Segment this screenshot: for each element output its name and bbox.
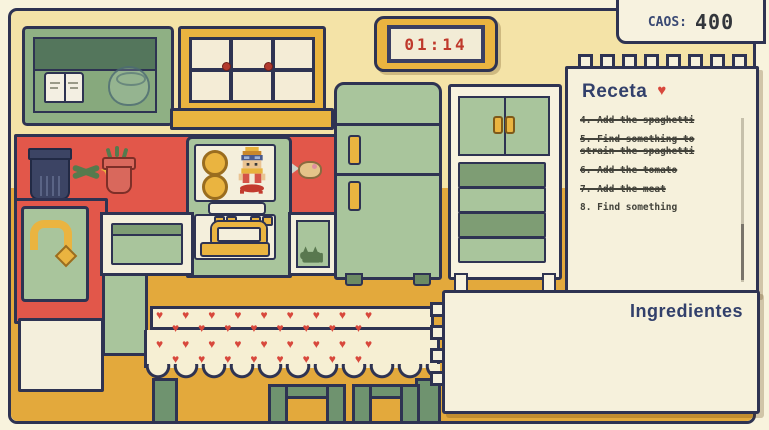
heart-pattern-icon: ♥ — [355, 322, 362, 334]
sprout — [115, 146, 119, 157]
recipe-item: 5. Find something to strain the spaghett… — [580, 134, 728, 158]
fridge-handle[interactable] — [348, 181, 361, 211]
heart-pattern-icon: ♥ — [365, 338, 372, 350]
pantry-drawer[interactable] — [458, 187, 546, 213]
pantry-drawer[interactable] — [458, 237, 546, 263]
heart-pattern-icon: ♥ — [365, 309, 372, 321]
heart-pattern-icon: ♥ — [208, 309, 215, 321]
window-latch-icon — [264, 62, 273, 71]
heart-pattern-icon: ♥ — [287, 309, 294, 321]
burner-icon[interactable] — [202, 150, 228, 176]
recipe-scrollbar[interactable] — [741, 118, 744, 282]
heart-pattern-icon: ♥ — [313, 338, 320, 350]
heart-pattern-icon: ♥ — [198, 322, 205, 334]
tablecloth: ♥♥♥♥♥♥♥♥♥ ♥♥♥♥♥♥♥♥ ♥♥♥♥♥♥♥♥♥ ♥♥♥♥♥♥♥♥ — [144, 306, 440, 386]
heart-pattern-icon: ♥ — [208, 338, 215, 350]
drawer-cabinet[interactable] — [100, 212, 194, 276]
heart-pattern-icon: ♥ — [172, 322, 179, 334]
heart-pattern-icon: ♥ — [355, 353, 362, 365]
heart-pattern-icon: ♥ — [339, 309, 346, 321]
window-sill — [170, 108, 334, 130]
trash-stripes — [36, 176, 64, 196]
heart-pattern-icon: ♥ — [156, 309, 163, 321]
heart-pattern-row: ♥♥♥♥♥♥♥♥ — [156, 353, 436, 365]
burner-icon[interactable] — [202, 174, 228, 200]
fridge-door-line — [336, 173, 440, 176]
drawer-front — [111, 223, 183, 265]
heart-pattern-icon: ♥ — [313, 309, 320, 321]
chaos-score-value: 400 — [695, 10, 734, 34]
window-latch-icon — [222, 62, 231, 71]
pantry-drawer[interactable] — [458, 162, 546, 188]
wall-clock: 01:14 — [374, 16, 498, 72]
fridge-cap-line — [336, 123, 440, 126]
cat-icon[interactable] — [298, 244, 324, 264]
tablecloth-scallop-edge — [144, 364, 440, 382]
heart-pattern-icon: ♥ — [277, 322, 284, 334]
game-screen: 01:14 ✦ — [0, 0, 769, 430]
heart-pattern-icon: ♥ — [250, 353, 257, 365]
heart-pattern-icon: ♥ — [339, 338, 346, 350]
window — [178, 26, 326, 114]
heart-pattern-icon: ♥ — [182, 338, 189, 350]
fridge-foot — [413, 273, 431, 286]
trash-can-icon[interactable] — [30, 148, 70, 200]
heart-pattern-icon: ♥ — [156, 338, 163, 350]
chair-leg — [352, 384, 372, 424]
heart-pattern-icon: ♥ — [261, 309, 268, 321]
heart-pattern-icon: ♥ — [234, 309, 241, 321]
heart-icon: ♥ — [657, 81, 666, 98]
plant-pot-icon[interactable] — [102, 148, 136, 194]
window-panes — [189, 37, 315, 103]
recipe-item: 8. Find something — [580, 202, 728, 214]
heart-pattern-row: ♥♥♥♥♥♥♥♥♥ — [156, 338, 436, 350]
chair-leg — [268, 384, 288, 424]
shelf-shadow — [35, 39, 155, 71]
chaos-score-panel: CAOS: 400 — [616, 0, 766, 44]
heart-pattern-row: ♥♥♥♥♥♥♥♥ — [156, 322, 436, 334]
heart-pattern-icon: ♥ — [303, 353, 310, 365]
heart-pattern-icon: ♥ — [303, 322, 310, 334]
heart-pattern-icon: ♥ — [287, 338, 294, 350]
heart-pattern-icon: ♥ — [250, 322, 257, 334]
fridge-handle[interactable] — [348, 135, 361, 165]
heart-pattern-row: ♥♥♥♥♥♥♥♥♥ — [156, 309, 436, 321]
fridge[interactable] — [334, 82, 442, 280]
clock-time: 01:14 — [404, 35, 467, 54]
recipe-panel: Receta ♥ 4. Add the spaghetti 5. Find so… — [565, 66, 759, 296]
heart-pattern-icon: ♥ — [172, 353, 179, 365]
heart-pattern-icon: ♥ — [182, 309, 189, 321]
dishwasher-panel[interactable] — [102, 268, 148, 356]
door-handle-icon[interactable] — [505, 116, 515, 134]
sink-cabinet[interactable] — [18, 318, 104, 392]
recipe-item: 7. Add the meat — [580, 184, 728, 196]
heart-pattern-icon: ♥ — [224, 353, 231, 365]
door-handle-icon[interactable] — [493, 116, 503, 134]
pantry-doors[interactable] — [458, 96, 550, 156]
heart-pattern-icon: ♥ — [329, 353, 336, 365]
recipe-list: 4. Add the spaghetti 5. Find something t… — [580, 115, 728, 221]
chaos-score-label: CAOS: — [648, 15, 687, 30]
clock-face: 01:14 — [387, 25, 485, 63]
heart-pattern-icon: ♥ — [261, 338, 268, 350]
ingredients-title: Ingredientes — [630, 301, 743, 322]
fridge-foot — [345, 273, 363, 286]
fishbowl-icon[interactable] — [108, 66, 150, 106]
heart-pattern-icon: ♥ — [224, 322, 231, 334]
heart-pattern-icon: ♥ — [329, 322, 336, 334]
recipe-item: 6. Add the tomato — [580, 165, 728, 177]
recipe-item: 4. Add the spaghetti — [580, 115, 728, 127]
trash-lid — [28, 148, 72, 160]
heart-pattern-icon: ♥ — [198, 353, 205, 365]
fish-body — [298, 161, 322, 179]
heart-pattern-icon: ♥ — [277, 353, 284, 365]
fish-icon[interactable] — [290, 160, 322, 178]
pot-body — [106, 166, 132, 194]
chair-leg — [326, 384, 346, 424]
chair-leg — [400, 384, 420, 424]
fish-spot — [312, 164, 317, 169]
ingredients-panel[interactable]: Ingredientes — [442, 290, 760, 414]
pantry-drawer[interactable] — [458, 212, 546, 238]
chef-character[interactable] — [236, 146, 268, 196]
oven-drawer-bar — [200, 242, 270, 257]
heart-pattern-icon: ♥ — [234, 338, 241, 350]
recipe-title: Receta — [582, 81, 647, 103]
recipe-scrollbar-thumb[interactable] — [741, 224, 744, 280]
recipe-book-icon[interactable] — [44, 72, 84, 103]
